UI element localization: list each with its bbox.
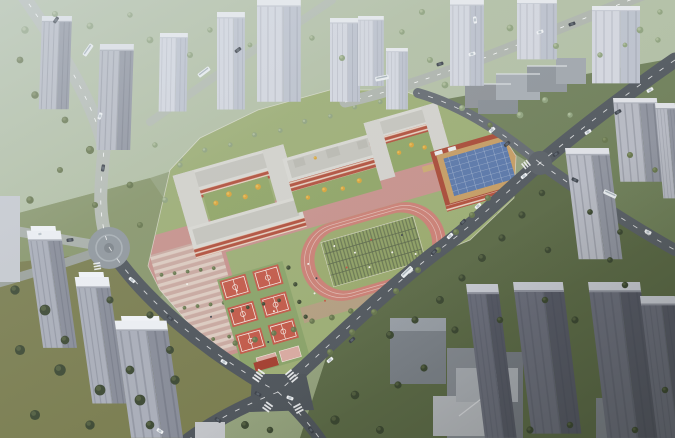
shade-overlay <box>0 0 675 438</box>
aerial-render-canvas <box>0 0 675 438</box>
scene-svg <box>0 0 675 438</box>
